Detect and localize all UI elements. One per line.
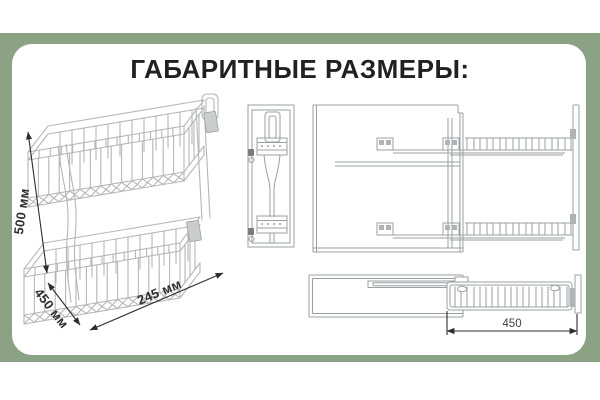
front-posts xyxy=(58,144,79,302)
slide-bracket-hatch xyxy=(379,129,576,230)
top-basket xyxy=(28,100,204,207)
product-isometric-drawing: 500 мм 450 мм 245 мм xyxy=(18,90,248,340)
top-view-drawing: 450 xyxy=(305,248,585,348)
side-view-drawing xyxy=(310,98,585,258)
door-section-hatch xyxy=(570,288,575,307)
page-title: ГАБАРИТНЫЕ РАЗМЕРЫ: xyxy=(0,54,600,85)
front-view-drawing xyxy=(245,100,300,255)
extension-dimension-label: 450 xyxy=(502,318,521,330)
